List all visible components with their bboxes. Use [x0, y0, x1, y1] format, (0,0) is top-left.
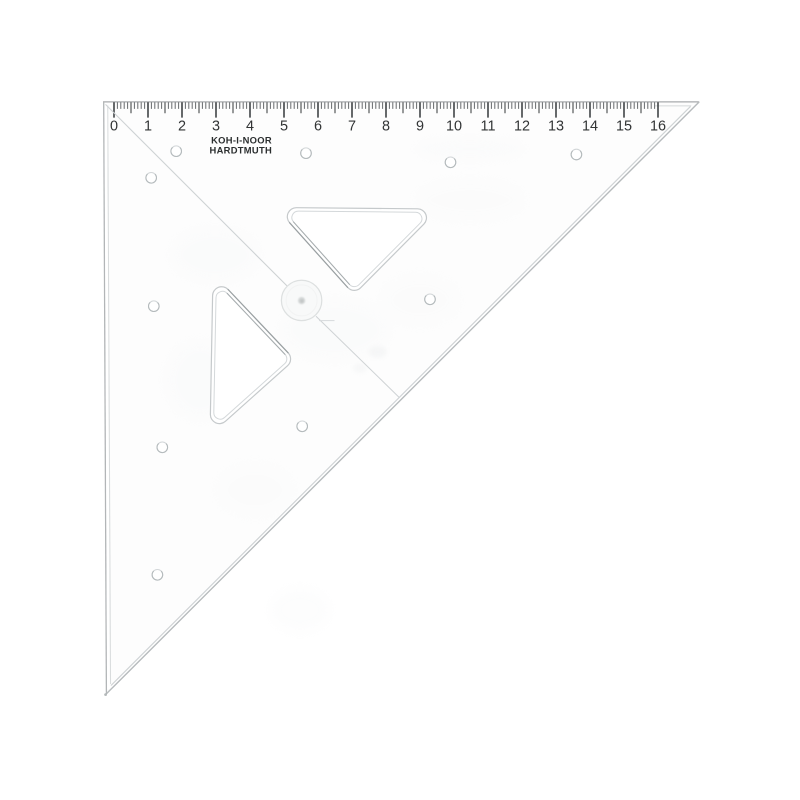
svg-text:5: 5 [280, 118, 288, 134]
svg-text:HARDTMUTH: HARDTMUTH [210, 144, 273, 155]
svg-text:0: 0 [110, 118, 118, 134]
svg-text:4: 4 [246, 118, 254, 134]
svg-text:14: 14 [582, 118, 598, 134]
svg-text:7: 7 [348, 118, 356, 134]
svg-text:9: 9 [416, 118, 424, 134]
svg-text:2: 2 [178, 118, 186, 134]
svg-text:8: 8 [382, 118, 390, 134]
svg-text:16: 16 [650, 118, 666, 134]
svg-text:3: 3 [212, 118, 220, 134]
svg-text:1: 1 [144, 118, 152, 134]
svg-text:10: 10 [446, 118, 462, 134]
svg-text:13: 13 [548, 118, 564, 134]
svg-text:15: 15 [616, 118, 632, 134]
svg-text:11: 11 [481, 118, 496, 134]
svg-text:6: 6 [314, 118, 322, 134]
svg-text:12: 12 [514, 118, 530, 134]
